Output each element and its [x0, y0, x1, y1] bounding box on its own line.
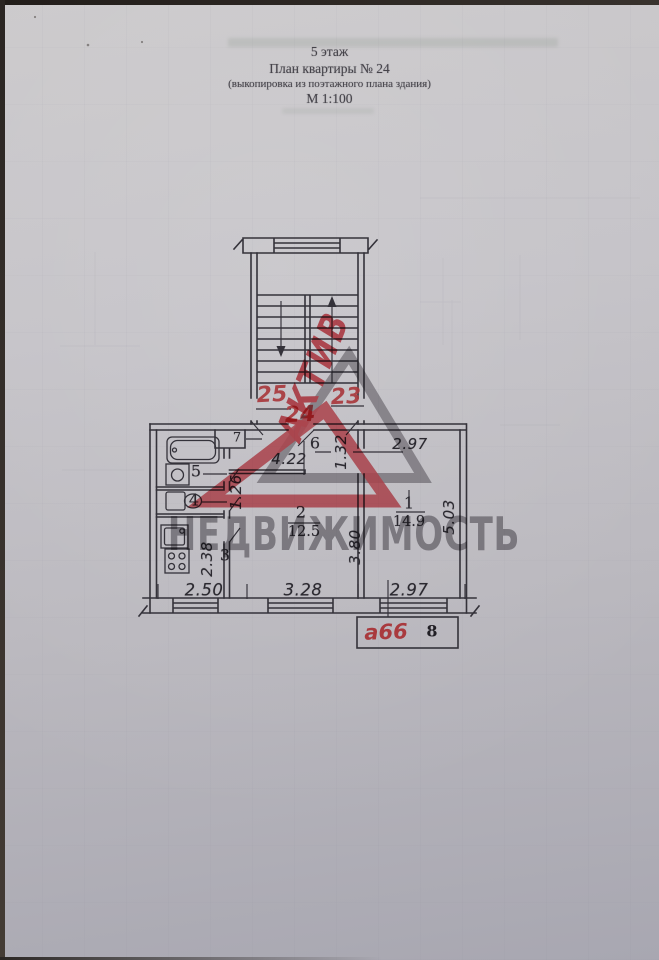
facade-wall-windows	[139, 598, 479, 616]
stove-icon	[165, 549, 189, 573]
dim-facade-room2: 3.28	[284, 581, 323, 600]
paper-speck	[87, 44, 90, 47]
photographed-floor-plan-page: 5 этаж План квартиры № 24 (выкопировка и…	[0, 0, 659, 960]
paper-speck	[34, 16, 36, 18]
dim-room2-length: 3.80	[346, 529, 364, 564]
room7-number: 7	[233, 431, 241, 446]
dim-facade-kitchen: 2.50	[185, 581, 224, 600]
dim-hall-width: 1.32	[332, 434, 350, 469]
room4-number: 4	[189, 491, 199, 510]
room6-number: 6	[310, 434, 320, 453]
room2-number: 2	[296, 503, 306, 522]
bathtub-icon	[167, 437, 219, 463]
room1-number: 1	[404, 494, 414, 513]
stairs-down-arrow-icon	[277, 346, 286, 357]
room1-area: 14.9	[393, 514, 425, 530]
stair-direction-lines	[281, 301, 332, 383]
stamp-handwritten-code: а66	[364, 619, 408, 645]
apartment-24-label: 24	[284, 402, 316, 429]
dim-room1-width: 2.97	[392, 435, 427, 453]
room5-number: 5	[191, 462, 201, 481]
dim-facade-room1: 2.97	[390, 581, 429, 600]
stairwell-window-wall	[234, 238, 377, 253]
floor-plan-drawing	[0, 0, 659, 960]
stairs-up-arrow-icon	[328, 296, 337, 307]
photo-edge-top	[0, 0, 659, 5]
photo-edge-left	[0, 0, 5, 960]
room3-number: 3	[220, 546, 230, 565]
paper-speck	[141, 41, 143, 43]
dim-kitchen-width: 2.38	[198, 541, 216, 576]
dim-sanitary-length: 1.26	[227, 474, 245, 509]
stamp-sheet-number: 8	[426, 622, 437, 641]
apartment-23-label: 23	[330, 384, 362, 411]
washbasin-icon	[166, 464, 189, 485]
room2-area: 12.5	[288, 524, 320, 540]
dim-hall-length: 4.22	[271, 450, 306, 468]
kitchen-sink-icon	[161, 525, 188, 548]
dim-room1-length: 5.03	[440, 499, 458, 534]
